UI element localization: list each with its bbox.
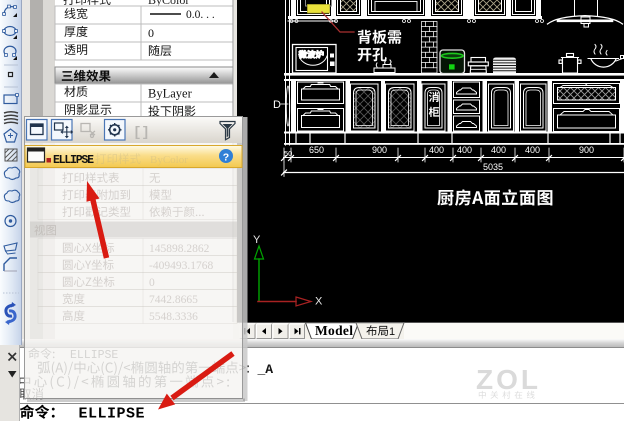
svg-text:-409493.1768: -409493.1768 [149, 260, 213, 272]
svg-text:5035: 5035 [483, 162, 503, 172]
svg-text:7442.8665: 7442.8665 [149, 294, 198, 306]
svg-text:1: 1 [389, 326, 395, 338]
svg-text:0: 0 [149, 277, 155, 289]
svg-text:400: 400 [457, 145, 472, 155]
svg-text:[]: [] [133, 125, 150, 141]
svg-text:ELLIPSE: ELLIPSE [79, 406, 145, 421]
svg-text:ELLIPSE: ELLIPSE [53, 154, 94, 167]
svg-text:ByColor: ByColor [150, 154, 188, 166]
svg-text:900: 900 [372, 145, 387, 155]
svg-text:400: 400 [491, 145, 506, 155]
svg-text:400: 400 [429, 145, 444, 155]
svg-text:145898.2862: 145898.2862 [149, 243, 210, 255]
svg-text:400: 400 [525, 145, 540, 155]
svg-text:?: ? [223, 151, 229, 163]
svg-text:900: 900 [579, 145, 594, 155]
svg-text:50: 50 [284, 149, 292, 158]
svg-text:_A: _A [257, 362, 274, 377]
svg-text:ZOL: ZOL [476, 364, 541, 395]
svg-text:Model: Model [315, 323, 353, 338]
svg-text:0: 0 [148, 26, 154, 40]
svg-text:5548.3336: 5548.3336 [149, 311, 198, 323]
svg-text:650: 650 [309, 145, 324, 155]
svg-text:0.0. . .: 0.0. . . [186, 9, 215, 21]
svg-text:X: X [315, 296, 323, 308]
svg-text:Y: Y [253, 234, 261, 246]
svg-text:ByLayer: ByLayer [148, 87, 193, 101]
svg-text:D: D [273, 99, 281, 111]
